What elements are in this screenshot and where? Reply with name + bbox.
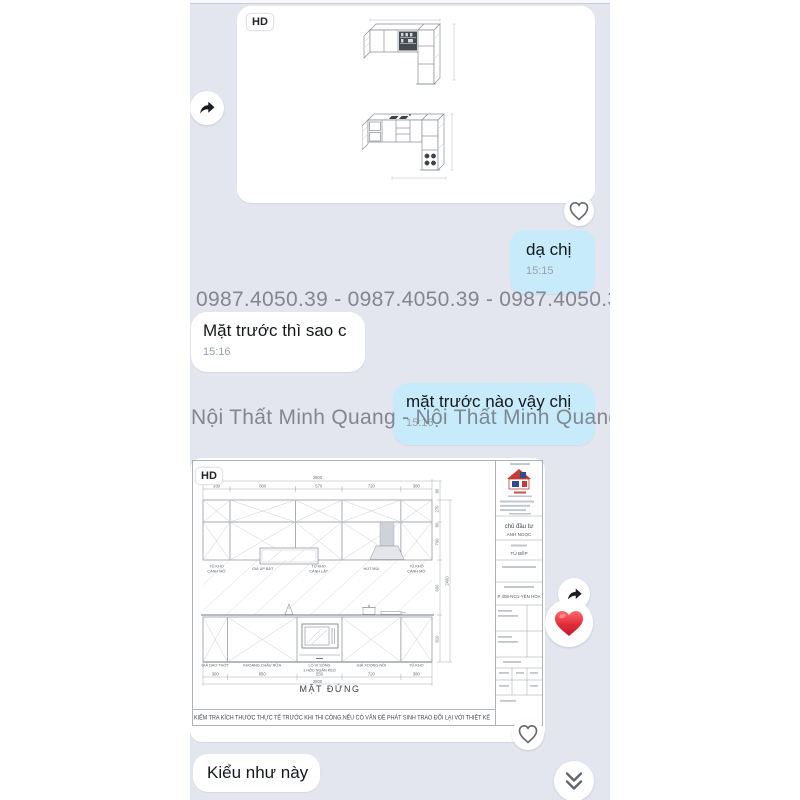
svg-text:810: 810	[435, 635, 440, 643]
top-divider-line	[190, 3, 610, 4]
svg-text:600: 600	[435, 584, 440, 592]
component-labels: TỦ KHO CÁNH MỞ GIÁ ÚP BÁT TỦ KHO CÁNH LẬ…	[201, 564, 426, 673]
message-bubble-incoming[interactable]: Kiểu như này	[193, 754, 320, 792]
kitchen-isometric-drawing	[362, 18, 462, 193]
svg-text:CÁNH LẬT: CÁNH LẬT	[309, 569, 328, 574]
investor-label: chủ đầu tư	[505, 523, 534, 530]
message-text: Kiểu như này	[207, 762, 320, 784]
counter-items	[285, 604, 406, 615]
message-bubble-outgoing[interactable]: mặt trước nào vậy chị 15:16	[393, 383, 595, 445]
like-button[interactable]	[512, 718, 544, 750]
title-block: chủ đầu tư ANH NGỌC TỦ BẾP P 408-NO1-YÊN…	[496, 463, 543, 702]
message-text: dạ chị	[526, 239, 595, 261]
investor-name: ANH NGỌC	[507, 532, 532, 537]
message-text: mặt trước nào vậy chị	[406, 391, 595, 413]
message-text: Mặt trước thì sao c	[203, 320, 365, 342]
message-time: 15:16	[406, 416, 595, 430]
message-time: 15:15	[526, 264, 595, 278]
heart-outline-icon	[564, 196, 594, 226]
svg-text:GIÁ DAO THỚT: GIÁ DAO THỚT	[201, 663, 229, 668]
svg-text:1 HỘC NGĂN KÉO: 1 HỘC NGĂN KÉO	[303, 668, 336, 673]
svg-text:80: 80	[435, 488, 440, 493]
svg-text:800: 800	[259, 484, 267, 489]
svg-text:380: 380	[413, 672, 421, 677]
svg-text:LÒ VI SÓNG: LÒ VI SÓNG	[309, 663, 331, 668]
iso-wall-cabinet-unit	[364, 24, 440, 84]
forward-button[interactable]	[190, 91, 224, 125]
elevation-drawing: 2800 330 800 570 720 380 300 850 550 720…	[190, 458, 545, 742]
hd-quality-badge: HD	[246, 13, 274, 31]
svg-text:GIÁ XOONG NỒI: GIÁ XOONG NỒI	[357, 663, 387, 668]
image-message-elevation-drawing[interactable]: 2800 330 800 570 720 380 300 850 550 720…	[190, 458, 545, 742]
svg-text:HÚT MÙI: HÚT MÙI	[364, 566, 380, 571]
svg-text:CÁNH MỞ: CÁNH MỞ	[207, 569, 226, 574]
svg-text:TỦ KHÔ: TỦ KHÔ	[409, 564, 423, 569]
project-address: P 408-NO1-YÊN HÒA	[497, 594, 540, 599]
svg-text:700: 700	[435, 538, 440, 546]
company-logo	[507, 469, 531, 494]
dimension-text: 2800 330 800 570 720 380 300 850 550 720…	[212, 475, 450, 684]
svg-text:720: 720	[368, 484, 376, 489]
heart-outline-icon	[513, 719, 543, 749]
fine-print-skeleton	[498, 463, 538, 702]
image-message-kitchen-render[interactable]: HD	[237, 6, 595, 203]
message-bubble-outgoing[interactable]: dạ chị 15:15	[510, 230, 595, 294]
svg-text:TỦ KHO: TỦ KHO	[312, 564, 326, 569]
double-chevron-down-icon	[554, 761, 594, 800]
title-block-dividers	[496, 516, 543, 695]
svg-text:CÁNH MỞ: CÁNH MỞ	[407, 569, 426, 574]
red-heart-emoji-icon	[552, 607, 586, 639]
hd-quality-badge: HD	[195, 467, 223, 485]
scroll-to-bottom-button[interactable]	[554, 761, 594, 800]
microwave	[299, 624, 340, 659]
svg-text:GIÁ ÚP BÁT: GIÁ ÚP BÁT	[252, 566, 274, 571]
svg-text:380: 380	[413, 484, 421, 489]
dim-side-total: 2400	[445, 576, 450, 586]
svg-text:850: 850	[259, 672, 267, 677]
message-time: 15:16	[203, 345, 365, 359]
svg-text:TỦ KHO: TỦ KHO	[409, 663, 423, 668]
like-button[interactable]	[564, 196, 594, 226]
dim-top-total: 2800	[313, 475, 323, 480]
heart-emoji-reaction[interactable]	[545, 599, 593, 647]
chat-screenshot: HD	[0, 0, 800, 800]
item-name: TỦ BẾP	[510, 550, 527, 557]
message-bubble-incoming[interactable]: Mặt trước thì sao c 15:16	[191, 312, 365, 372]
svg-text:300: 300	[212, 672, 220, 677]
drawing-disclaimer: KIỂM TRA KÍCH THƯỚC THỰC TẾ TRƯỚC KHI TH…	[194, 715, 490, 722]
svg-text:570: 570	[315, 484, 323, 489]
iso-base-cabinet-unit	[362, 114, 444, 170]
svg-text:720: 720	[368, 672, 376, 677]
drawing-title: MẶT ĐỨNG	[299, 684, 360, 694]
glass-shelf-and-hood	[260, 522, 404, 564]
svg-text:TỦ KHO: TỦ KHO	[209, 564, 223, 569]
forward-icon	[196, 97, 218, 119]
svg-text:270: 270	[435, 505, 440, 513]
svg-text:80: 80	[435, 522, 440, 527]
chat-conversation-area: HD	[190, 0, 610, 800]
svg-text:KHOANG CHẬU RỬA: KHOANG CHẬU RỬA	[243, 663, 281, 668]
